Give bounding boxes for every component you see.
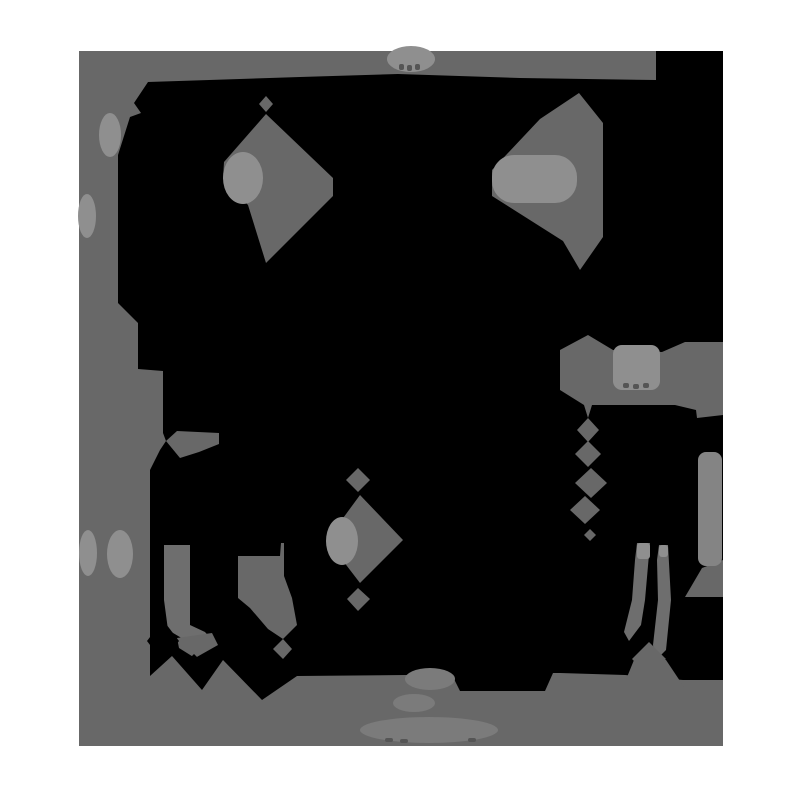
ground-blob-2 (393, 694, 435, 712)
left-edge-blob-3 (79, 530, 97, 576)
left-kite-highlight (223, 152, 263, 204)
hump-tick-3 (415, 64, 420, 70)
ground-tick-3 (468, 738, 476, 742)
posterized-photo (0, 0, 800, 800)
right-mid-ticks-2 (633, 384, 639, 389)
left-edge-blob-1 (99, 113, 121, 157)
page-background (0, 0, 800, 800)
right-mid-ticks-3 (643, 383, 649, 388)
right-edge-strip (698, 452, 722, 566)
hind-leg-strip-2-cap (659, 545, 668, 557)
hind-leg-strip-1-cap (637, 543, 650, 559)
ground-blob-1 (405, 668, 455, 690)
left-edge-blob-4 (107, 530, 133, 578)
hump-tick-2 (407, 65, 412, 71)
right-mid-ticks-1 (623, 383, 629, 388)
ground-blob-watermark (360, 717, 498, 743)
right-kite-highlight (492, 155, 577, 203)
hump-tick-1 (399, 64, 404, 70)
left-edge-blob-2 (78, 194, 96, 238)
ground-tick-2 (400, 739, 408, 743)
ground-tick-1 (385, 738, 393, 742)
right-mid-highlight (613, 345, 660, 390)
mid-diamond-highlight (326, 517, 358, 565)
